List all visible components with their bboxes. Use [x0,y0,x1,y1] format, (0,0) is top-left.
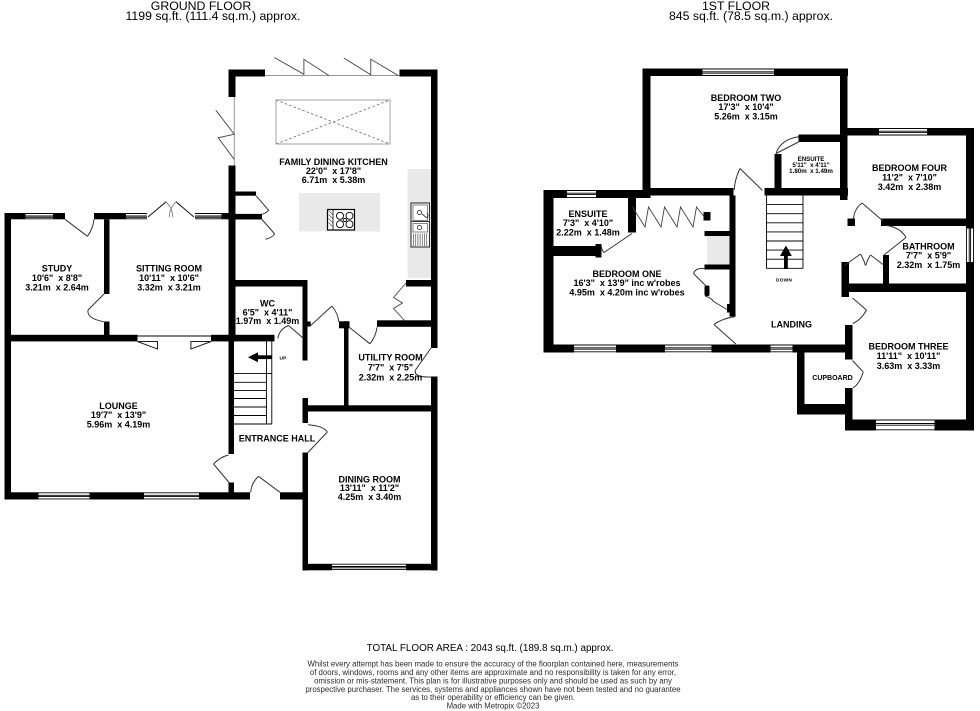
svg-text:UTILITY ROOM: UTILITY ROOM [358,353,422,363]
svg-text:3.32m x 3.21m: 3.32m x 3.21m [137,282,201,292]
svg-text:LANDING: LANDING [771,320,812,330]
svg-text:5.26m x 3.15m: 5.26m x 3.15m [714,111,778,121]
svg-text:2.22m x 1.48m: 2.22m x 1.48m [556,227,620,237]
svg-text:5.96m x 4.19m: 5.96m x 4.19m [87,419,151,429]
svg-text:4.25m x 3.40m: 4.25m x 3.40m [338,492,402,502]
svg-text:10'6" x 8'8": 10'6" x 8'8" [32,273,82,283]
svg-text:CUPBOARD: CUPBOARD [812,375,852,382]
svg-text:1199 sq.ft. (111.4 sq.m.) appr: 1199 sq.ft. (111.4 sq.m.) approx. [126,9,301,23]
svg-text:845 sq.ft. (78.5 sq.m.) approx: 845 sq.ft. (78.5 sq.m.) approx. [669,9,833,23]
svg-text:2.32m x 2.25m: 2.32m x 2.25m [359,372,423,382]
svg-text:6.71m x 5.38m: 6.71m x 5.38m [302,175,366,185]
svg-text:DOWN: DOWN [776,278,792,284]
svg-text:1.97m x 1.49m: 1.97m x 1.49m [236,316,300,326]
svg-text:11'11" x 10'11": 11'11" x 10'11" [877,351,941,361]
svg-text:SITTING ROOM: SITTING ROOM [136,263,202,273]
svg-text:TOTAL FLOOR AREA : 2043 sq.ft.: TOTAL FLOOR AREA : 2043 sq.ft. (189.8 sq… [367,643,614,654]
svg-text:10'11" x 10'6": 10'11" x 10'6" [139,273,199,283]
svg-text:STUDY: STUDY [42,263,73,273]
svg-text:UP: UP [280,356,288,362]
svg-text:ENTRANCE HALL: ENTRANCE HALL [239,433,316,443]
svg-text:2.32m x 1.75m: 2.32m x 1.75m [897,260,961,270]
svg-text:3.21m x 2.64m: 3.21m x 2.64m [25,282,89,292]
svg-text:7'7" x 7'5": 7'7" x 7'5" [368,363,413,373]
svg-text:Made with Metropix ©2023: Made with Metropix ©2023 [447,702,540,711]
svg-text:1.80m x 1.49m: 1.80m x 1.49m [789,168,833,175]
svg-text:4.95m x 4.20m inc w'robes: 4.95m x 4.20m inc w'robes [569,287,684,297]
svg-text:3.42m x 2.38m: 3.42m x 2.38m [878,182,942,192]
svg-text:3.63m x 3.33m: 3.63m x 3.33m [877,361,941,371]
